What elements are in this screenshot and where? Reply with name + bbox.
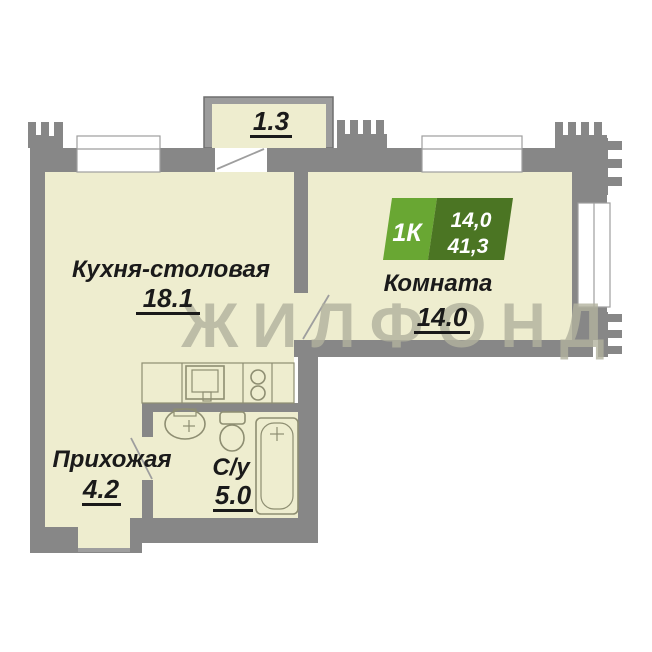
bathroom-area-underline xyxy=(213,509,253,512)
living-room-area-label: 14.0 xyxy=(417,302,468,332)
bathroom-name-label: С/у xyxy=(212,454,251,481)
balcony-area-underline xyxy=(250,135,292,138)
balcony-area-label: 1.3 xyxy=(253,106,290,136)
entrance-door-line xyxy=(78,548,130,552)
kitchen-name-label: Кухня-столовая xyxy=(72,256,270,283)
living-room-name-label: Комната xyxy=(384,270,493,297)
bathroom-area-label: 5.0 xyxy=(215,480,252,510)
kitchen-room-partition xyxy=(294,172,308,293)
entrance-recess xyxy=(78,527,130,548)
kitchen-area-underline xyxy=(136,312,200,315)
hallway-area-label: 4.2 xyxy=(82,474,120,504)
crenellation-right-upper xyxy=(598,138,622,195)
crenellation-top-middle xyxy=(337,120,387,148)
left-exterior-wall xyxy=(30,135,45,553)
badge-rooms-label: 1К xyxy=(392,219,423,247)
entrance-door xyxy=(78,527,130,552)
balcony-door-icon xyxy=(215,148,267,172)
hall-bath-divider-lower xyxy=(142,480,153,518)
badge-total-area-label: 41,3 xyxy=(447,235,489,258)
bathroom-bottom-wall xyxy=(130,518,318,543)
hall-bath-divider-upper xyxy=(142,403,153,437)
crenellation-top-left xyxy=(28,122,63,148)
bathroom-top-wall xyxy=(142,403,318,412)
living-room-area-underline xyxy=(414,331,470,334)
badge-living-area-label: 14,0 xyxy=(451,209,492,232)
living-room-top-window-icon xyxy=(422,136,522,172)
kitchen-area-label: 18.1 xyxy=(143,283,194,313)
watermark-text: ЖИЛФОНД xyxy=(180,291,619,361)
hallway-area-underline xyxy=(82,503,121,506)
kitchen-window-icon xyxy=(77,136,160,172)
area-badge: 1К 14,0 41,3 xyxy=(383,198,513,260)
bathroom-right-wall xyxy=(298,340,318,543)
hallway-name-label: Прихожая xyxy=(52,446,171,473)
floor-plan-image: ЖИЛФОНД Кухня-столовая 18.1 Комната 14.0… xyxy=(0,0,652,652)
